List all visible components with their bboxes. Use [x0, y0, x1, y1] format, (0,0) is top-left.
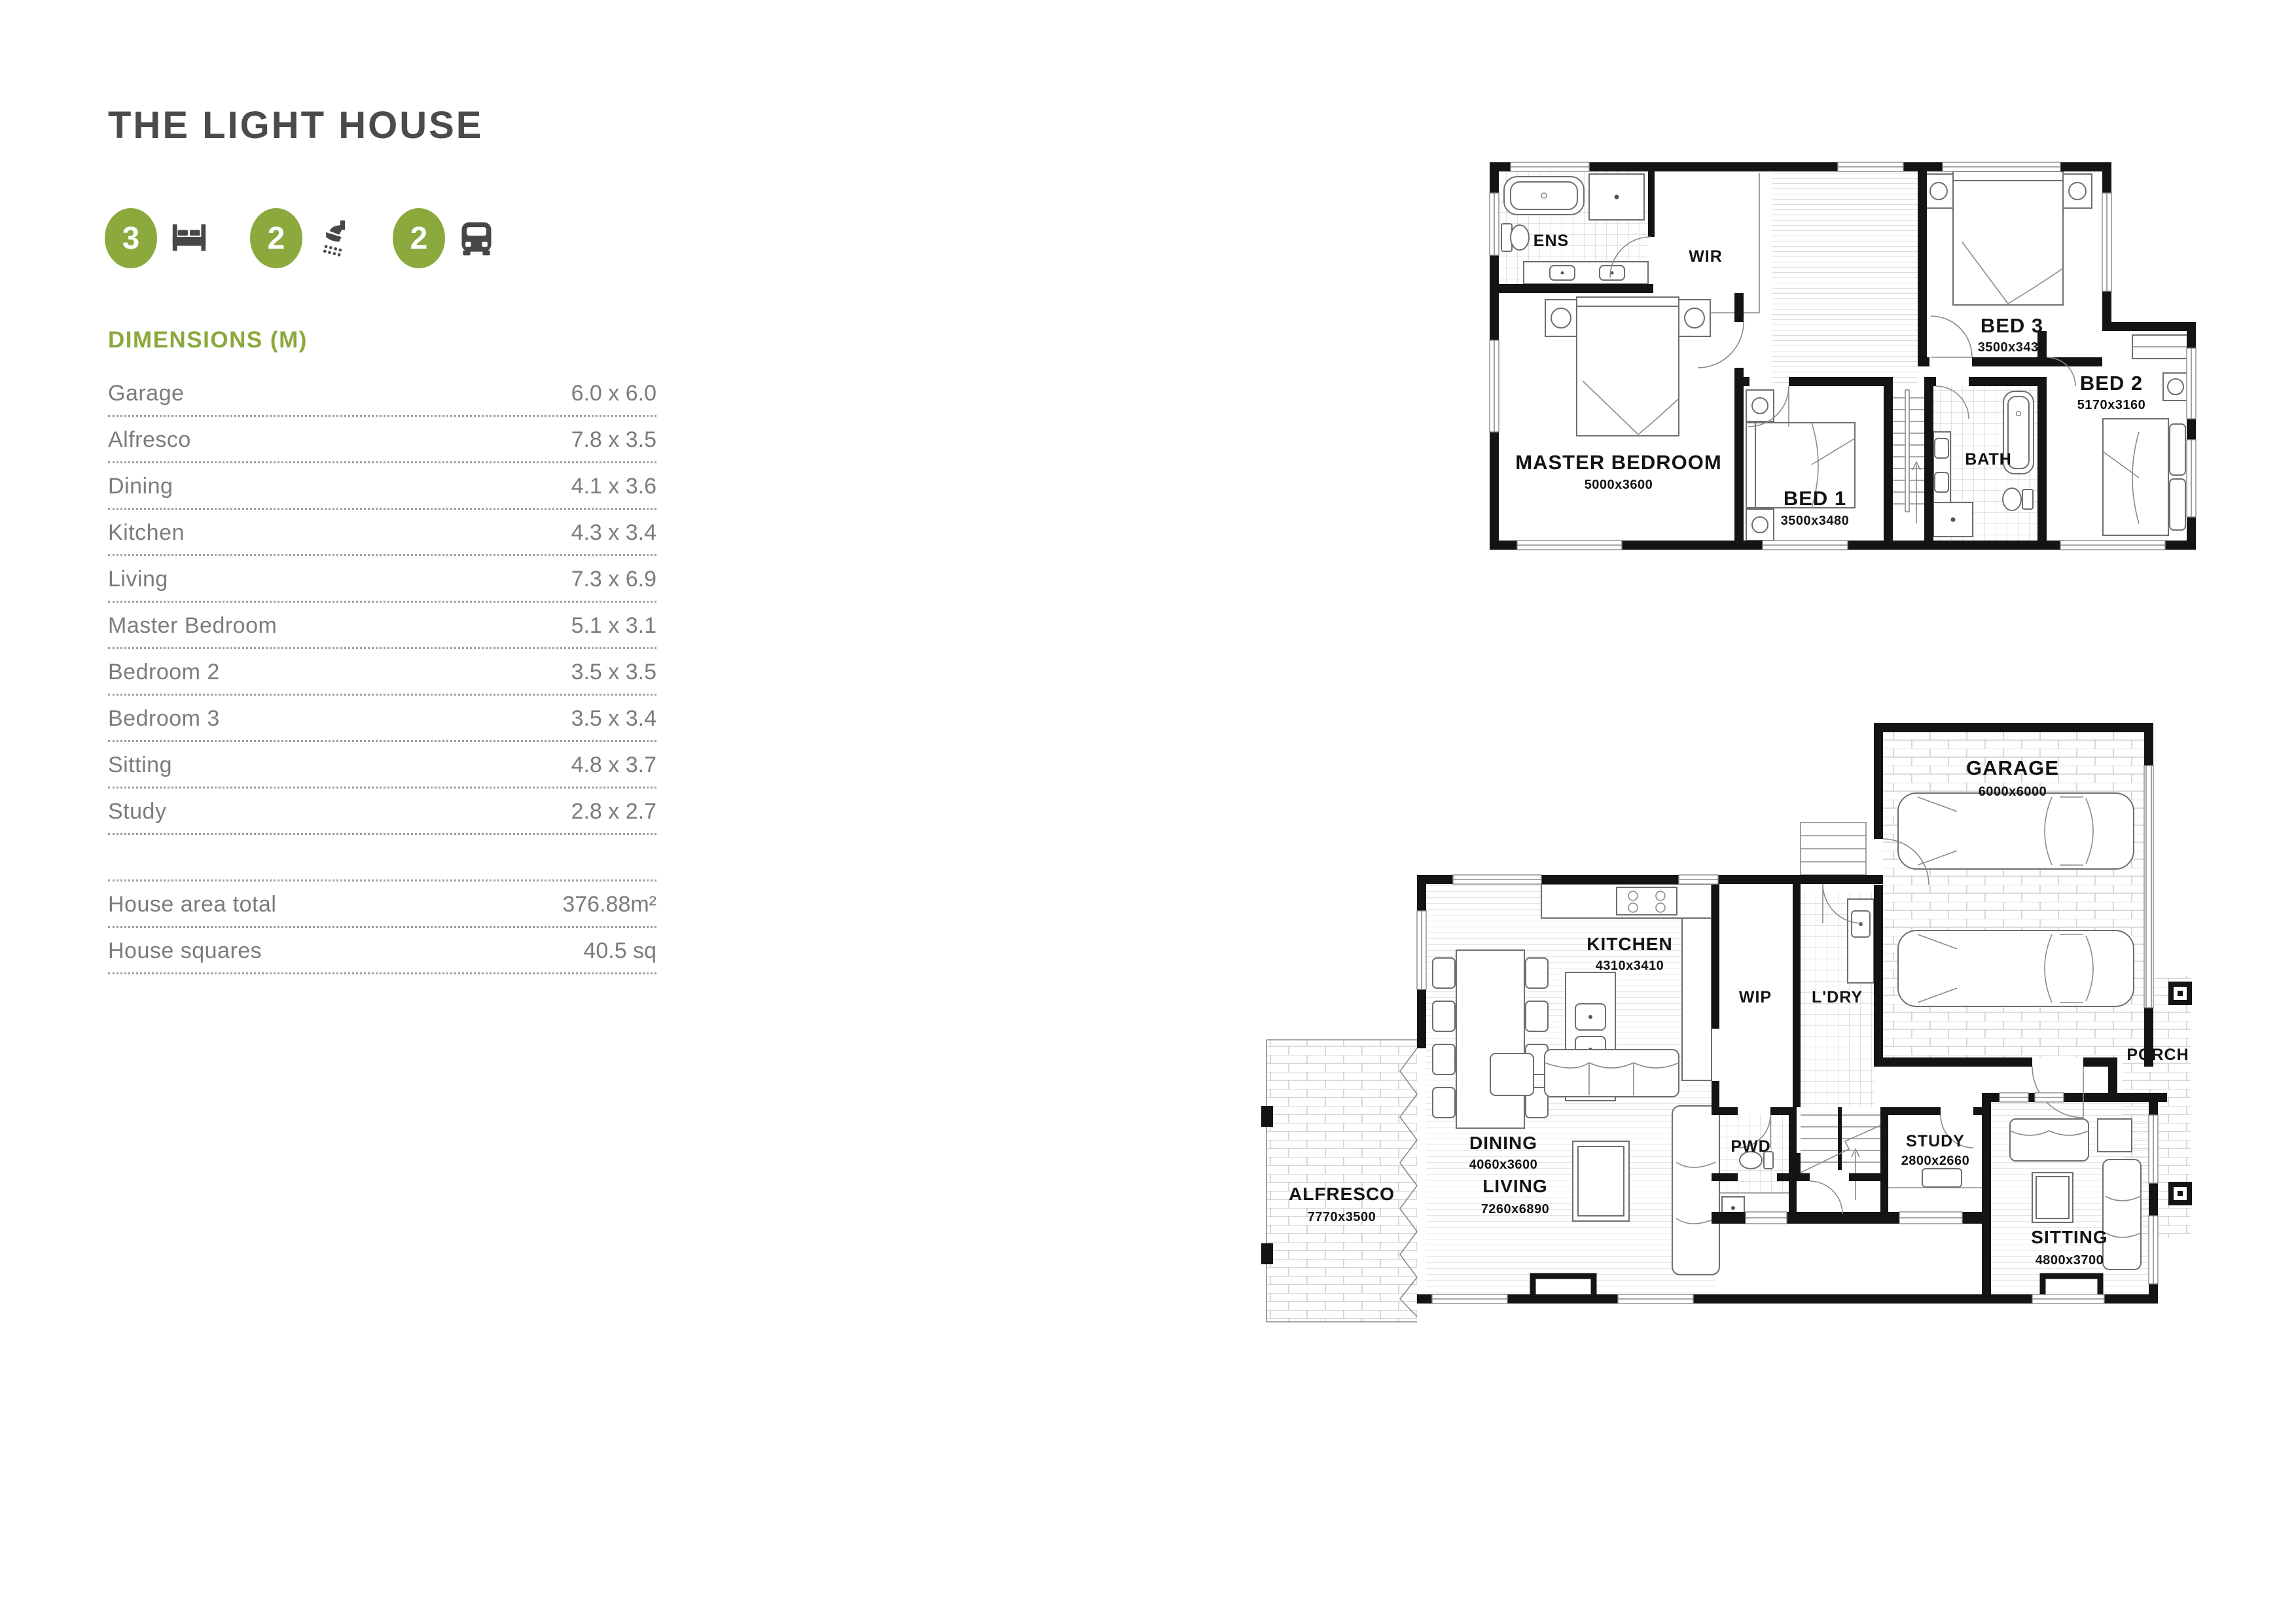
bath-toilet	[2003, 488, 2033, 510]
car-icon	[457, 218, 496, 258]
room-dim-alfresco: 7770x3500	[1308, 1210, 1376, 1224]
dim-value: 4.1 x 3.6	[571, 474, 656, 499]
dim-label: Dining	[108, 474, 173, 499]
room-label-bath: BATH	[1965, 450, 2012, 469]
dim-value: 6.0 x 6.0	[571, 381, 656, 406]
room-dim-bed1: 3500x3480	[1781, 514, 1850, 528]
ground-floor-plan: GARAGE 6000x6000 KITCHEN 4310x3410 WIP L…	[1260, 715, 2242, 1330]
page-title: THE LIGHT HOUSE	[108, 103, 483, 147]
bedroom-count-badge: 3	[105, 208, 157, 268]
shower-icon	[314, 218, 352, 258]
dim-label: Kitchen	[108, 520, 185, 546]
dimensions-heading: DIMENSIONS (M)	[108, 327, 308, 353]
room-dim-living: 7260x6890	[1481, 1202, 1550, 1216]
dim-value: 2.8 x 2.7	[571, 799, 656, 825]
dimensions-table: Garage 6.0 x 6.0 Alfresco 7.8 x 3.5 Dini…	[108, 370, 656, 974]
ens-shower	[1589, 174, 1644, 220]
upper-stairs	[1893, 390, 1924, 524]
room-label-bed2: BED 2	[2080, 372, 2143, 395]
dim-label: Study	[108, 799, 166, 825]
dim-value: 7.3 x 6.9	[571, 567, 656, 592]
dim-label: Garage	[108, 381, 184, 406]
dim-row-sitting: Sitting 4.8 x 3.7	[108, 742, 656, 789]
dim-label: Alfresco	[108, 427, 191, 453]
room-dim-master-bedroom: 5000x3600	[1585, 478, 1653, 492]
stair-void-floor	[1772, 171, 1918, 386]
room-dim-bed3: 3500x3430	[1978, 340, 2047, 355]
dim-row-garage: Garage 6.0 x 6.0	[108, 370, 656, 417]
room-label-bed3: BED 3	[1981, 314, 2043, 337]
dim-row-master-bedroom: Master Bedroom 5.1 x 3.1	[108, 603, 656, 649]
garage-floor-brick	[1883, 732, 2144, 1057]
bathroom-count-badge: 2	[250, 208, 302, 268]
garage-car-2	[1898, 931, 2134, 1006]
room-label-alfresco: ALFRESCO	[1289, 1184, 1395, 1204]
dim-row-kitchen: Kitchen 4.3 x 3.4	[108, 510, 656, 556]
room-label-living: LIVING	[1482, 1176, 1547, 1196]
room-label-ldry: L'DRY	[1812, 988, 1863, 1006]
bed-icon	[169, 218, 209, 258]
ens-toilet	[1501, 224, 1529, 251]
feature-cars: 2	[393, 208, 496, 268]
feature-bathrooms: 2	[250, 208, 352, 268]
dim-row-living: Living 7.3 x 6.9	[108, 556, 656, 603]
room-label-wip: WIP	[1739, 988, 1772, 1006]
alfresco-floor-brick	[1266, 1040, 1417, 1322]
bed2-bed	[2103, 335, 2188, 535]
room-label-porch: PORCH	[2126, 1046, 2189, 1064]
dim-label: House area total	[108, 892, 277, 917]
dim-label: Living	[108, 567, 168, 592]
external-steps	[1801, 823, 1866, 875]
room-label-master-bedroom: MASTER BEDROOM	[1515, 451, 1721, 474]
upper-floor-plan: ENS WIR MASTER BEDROOM 5000x3600 BED 1 3…	[1484, 157, 2198, 556]
room-dim-sitting: 4800x3700	[2036, 1253, 2104, 1268]
dim-row-house-area-total: House area total 376.88m²	[108, 881, 656, 928]
feature-summary: 3 2 2	[105, 208, 537, 268]
room-dim-dining: 4060x3600	[1469, 1158, 1538, 1172]
bath-shower	[1933, 503, 1973, 537]
dim-row-alfresco: Alfresco 7.8 x 3.5	[108, 417, 656, 463]
dim-value: 376.88m²	[562, 892, 656, 917]
garage-car-1	[1898, 793, 2134, 869]
room-label-pwd: PWD	[1731, 1137, 1770, 1156]
dim-row-dining: Dining 4.1 x 3.6	[108, 463, 656, 510]
room-dim-bed2: 5170x3160	[2077, 398, 2146, 412]
room-label-sitting: SITTING	[2031, 1227, 2108, 1247]
dim-value: 5.1 x 3.1	[571, 613, 656, 639]
dim-label: Sitting	[108, 753, 172, 778]
wir-boundary	[1653, 173, 1759, 313]
dim-value: 40.5 sq	[583, 938, 656, 964]
dim-row-study: Study 2.8 x 2.7	[108, 789, 656, 835]
feature-bedrooms: 3	[105, 208, 209, 268]
dim-value: 4.3 x 3.4	[571, 520, 656, 546]
room-dim-study: 2800x2660	[1901, 1154, 1970, 1168]
room-dim-garage: 6000x6000	[1979, 785, 2047, 799]
master-bed	[1545, 297, 1710, 436]
dim-row-spacer	[108, 835, 656, 881]
room-label-dining: DINING	[1469, 1133, 1537, 1153]
room-label-garage: GARAGE	[1966, 756, 2059, 779]
room-label-bed1: BED 1	[1784, 487, 1846, 510]
room-label-ens: ENS	[1534, 232, 1569, 250]
laundry-bench	[1848, 899, 1874, 983]
room-label-study: STUDY	[1906, 1132, 1965, 1150]
room-dim-kitchen: 4310x3410	[1596, 959, 1664, 973]
dim-label: Bedroom 2	[108, 660, 220, 685]
bed3-bed	[1924, 171, 2092, 305]
garage-door	[2144, 766, 2153, 1008]
dim-value: 3.5 x 3.5	[571, 660, 656, 685]
dim-label: House squares	[108, 938, 262, 964]
dim-row-bedroom-3: Bedroom 3 3.5 x 3.4	[108, 696, 656, 742]
room-label-kitchen: KITCHEN	[1587, 934, 1672, 954]
dim-value: 3.5 x 3.4	[571, 706, 656, 732]
dim-row-bedroom-2: Bedroom 2 3.5 x 3.5	[108, 649, 656, 696]
dim-value: 7.8 x 3.5	[571, 427, 656, 453]
bath-vanity	[1933, 432, 1950, 503]
dim-label: Master Bedroom	[108, 613, 277, 639]
car-count-badge: 2	[393, 208, 445, 268]
dim-row-house-squares: House squares 40.5 sq	[108, 928, 656, 974]
ens-bathtub	[1504, 177, 1584, 215]
ens-vanity	[1524, 262, 1648, 284]
room-label-wir: WIR	[1689, 247, 1723, 266]
dim-label: Bedroom 3	[108, 706, 220, 732]
dim-value: 4.8 x 3.7	[571, 753, 656, 778]
